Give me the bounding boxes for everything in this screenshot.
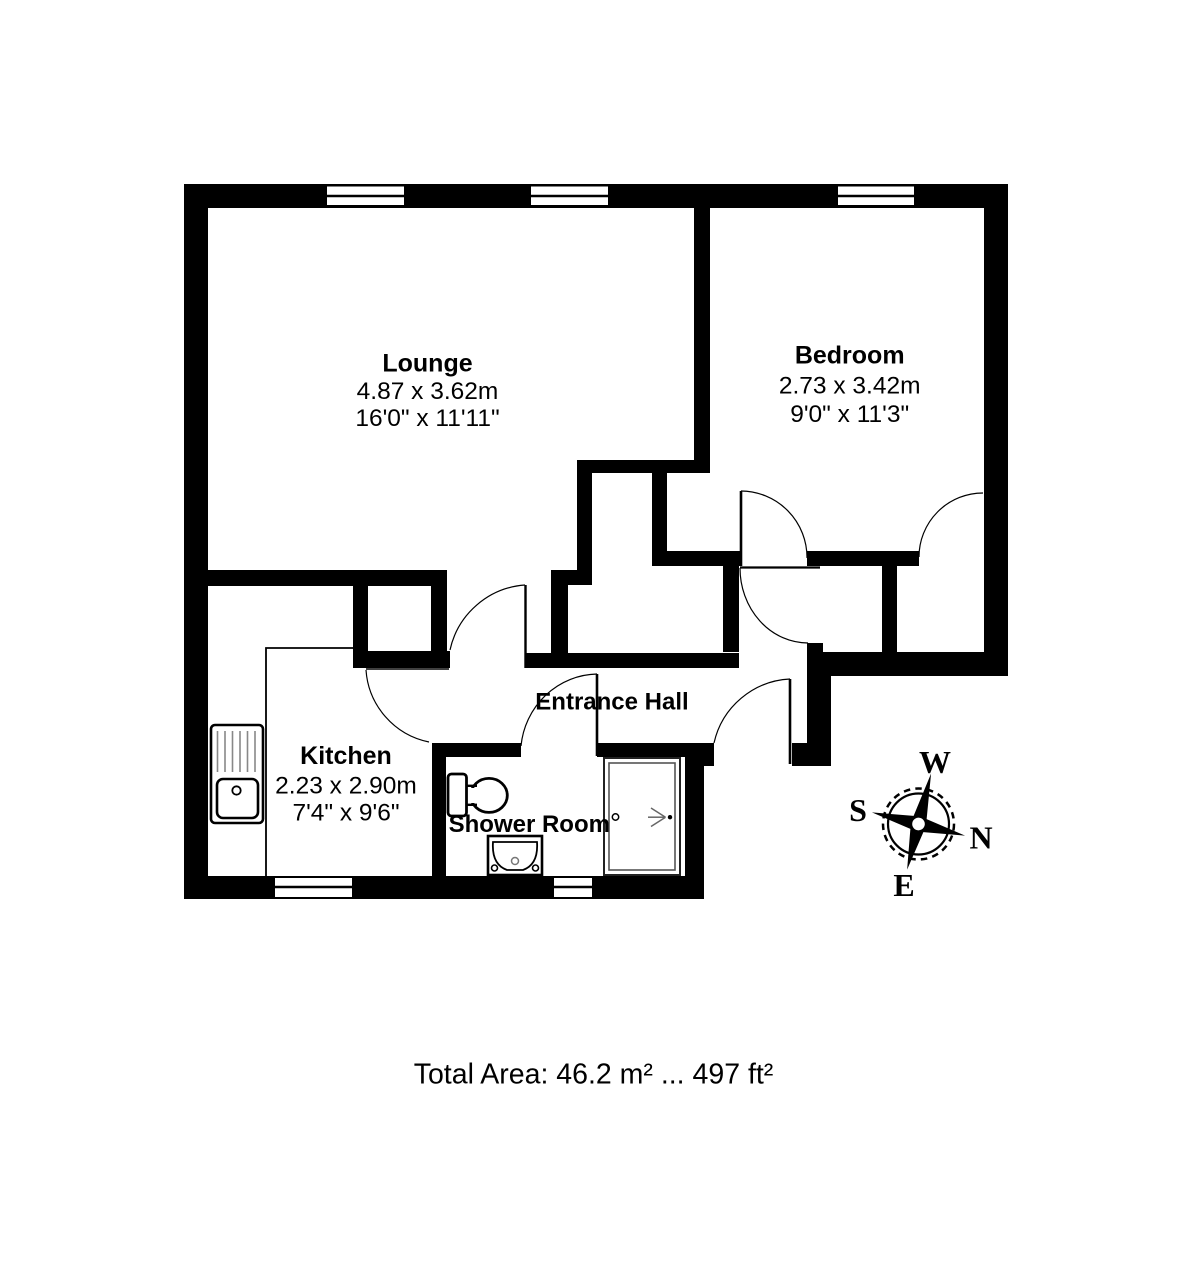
svg-text:Total Area: 46.2 m² ... 497 ft: Total Area: 46.2 m² ... 497 ft²	[414, 1059, 774, 1091]
svg-text:Kitchen: Kitchen	[300, 742, 392, 770]
svg-text:Bedroom: Bedroom	[795, 342, 905, 370]
svg-text:4.87 x 3.62m: 4.87 x 3.62m	[357, 378, 499, 405]
svg-text:2.73 x 3.42m: 2.73 x 3.42m	[779, 372, 921, 399]
svg-text:Entrance Hall: Entrance Hall	[535, 689, 688, 716]
svg-text:Shower Room: Shower Room	[449, 811, 610, 838]
svg-text:16'0" x 11'11": 16'0" x 11'11"	[355, 405, 499, 432]
svg-text:Lounge: Lounge	[382, 350, 472, 378]
svg-text:9'0" x 11'3": 9'0" x 11'3"	[790, 401, 909, 428]
svg-text:2.23 x 2.90m: 2.23 x 2.90m	[275, 772, 417, 799]
svg-text:N: N	[969, 820, 992, 856]
svg-text:S: S	[849, 792, 867, 828]
svg-text:7'4" x 9'6": 7'4" x 9'6"	[292, 800, 399, 827]
svg-text:E: E	[893, 867, 914, 903]
svg-text:W: W	[919, 744, 951, 780]
